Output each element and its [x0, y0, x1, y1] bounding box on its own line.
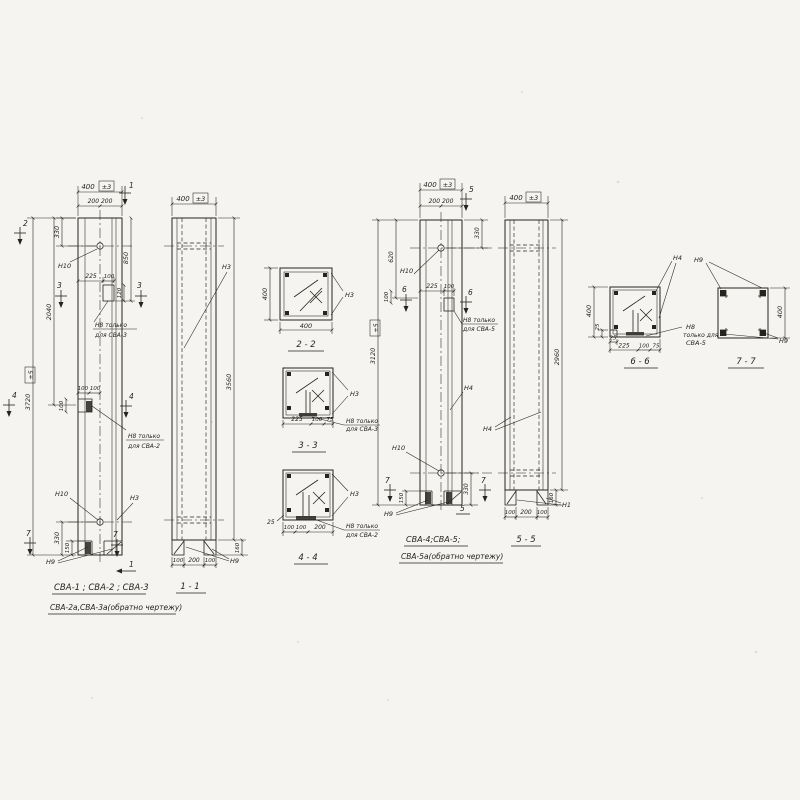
section-mark-6-left: 6 — [400, 285, 412, 312]
view-title: 7 - 7 — [736, 357, 756, 367]
tolerance-box: ±5 — [27, 370, 35, 380]
section-mark-7-right: 7 — [111, 530, 123, 557]
dim-label: 3560 — [225, 374, 233, 391]
section-4-4: Н3 25 100 100 200 Н8 только для СВА-2 4 … — [267, 470, 380, 564]
view-title: СВА-1 ; СВА-2 ; СВА-3 — [54, 583, 149, 593]
note-text: Н8 — [686, 323, 695, 331]
section-mark-label: 5 — [469, 185, 474, 194]
pile-body — [505, 220, 548, 490]
note-text: для СВА-5 — [462, 326, 495, 333]
section-mark-7-right: 7 — [479, 476, 491, 502]
view-1-1: 400 ±3 Н3 3560 100 200 100 160 Н9 1 - 1 — [164, 193, 248, 593]
note-text: Н8 только — [463, 317, 495, 324]
dim-label: 400 — [776, 306, 784, 318]
dim-label: 100 — [104, 274, 115, 280]
note-text: только для — [683, 332, 719, 339]
rebar-label: Н10 — [58, 262, 71, 270]
dim-label: 2040 — [45, 304, 53, 321]
rebar-label: Н3 — [130, 494, 139, 502]
section-mark-label: 6 — [468, 288, 473, 297]
view-title: 6 - 6 — [630, 357, 650, 367]
section-mark-2: 2 — [14, 219, 28, 245]
dim-label: 3120 — [369, 348, 377, 365]
section-3-3: Н3 225 100 75 Н8 только для СВА-3 3 - 3 — [283, 368, 380, 452]
dim-label: 75 — [653, 344, 660, 350]
dim-label: 225 — [291, 416, 303, 423]
note-text: Н8 только — [346, 523, 378, 530]
dim-label: 100 — [205, 558, 216, 564]
rebar-label: Н4 — [483, 425, 492, 433]
rebar-label: Н4 — [673, 254, 682, 262]
rebar-label: Н10 — [55, 490, 68, 498]
dim-label: 25 — [610, 336, 617, 342]
dim-label: 100 — [59, 400, 65, 411]
dim-halves-label: 200 200 — [88, 198, 113, 205]
rebar-label: Н3 — [345, 291, 354, 299]
dim-label: 400 — [585, 305, 593, 317]
section-mark-label: 1 — [129, 560, 134, 569]
dim-label: 225 — [618, 343, 630, 350]
section-2-2: Н3 400 400 2 - 2 — [261, 268, 354, 351]
section-mark-label: 3 — [137, 281, 142, 290]
dim-label: 200 — [314, 524, 326, 531]
dim-label: 225 — [85, 273, 97, 280]
dim-label: 100 — [173, 558, 184, 564]
dim-width-label: 400 — [81, 183, 95, 191]
dim-label: 200 — [188, 557, 200, 564]
dim-label: 100 100 — [78, 386, 101, 392]
dim-label: 100 — [444, 284, 455, 290]
section-mark-3-right: 3 — [135, 281, 147, 308]
rebar-label: Н4 — [464, 384, 473, 392]
view-title: 2 - 2 — [296, 340, 315, 350]
dim-label: 620 — [388, 251, 395, 263]
section-7-7: Н9 Н9 400 7 - 7 — [694, 256, 790, 368]
dim-label: 3720 — [24, 394, 32, 411]
section-mark-4-left: 4 — [3, 391, 17, 417]
dim-label: 330 — [474, 227, 481, 239]
section-mark-1-top: 1 — [119, 181, 134, 205]
dim-label: 100 — [384, 291, 390, 302]
dim-width-label: 400 — [176, 195, 190, 203]
rebar-label: Н9 — [384, 510, 393, 518]
section-mark-1-bottom: 1 — [116, 560, 136, 574]
view-title: 5 - 5 — [516, 535, 535, 545]
foot-right — [204, 540, 216, 555]
section-mark-label: 7 — [113, 530, 118, 539]
rebar-label: Н3 — [350, 390, 359, 398]
dim-label: 850 — [122, 252, 130, 264]
elevation-sva-4-5: 400 ±3 200 200 5 330 620 Н10 225 100 100… — [369, 179, 503, 563]
view-title: СВА-2а,СВА-3а(обратно чертежу) — [50, 603, 182, 612]
section-6-6: Н4 400 25 25 225 100 75 Н8 только для СВ… — [585, 254, 719, 368]
dim-label: 160 — [235, 542, 241, 553]
note-text: для СВА-3 — [345, 426, 378, 433]
foot-left — [172, 540, 184, 555]
dim-label: 25 — [595, 323, 601, 330]
dim-label: 100 — [296, 525, 307, 531]
section-mark-7-left: 7 — [384, 476, 396, 502]
rebar-label: Н9 — [46, 558, 55, 566]
note-text: Н8 только — [128, 433, 160, 440]
view-5-5: 400 ±3 2960 Н4 100 200 100 160 Н1 5 - 5 — [483, 192, 571, 546]
blueprint-canvas: 400 ±3 200 200 1 2 330 850 225 100 120 — [0, 0, 800, 800]
dim-label: 400 — [261, 288, 269, 300]
view-title: 4 - 4 — [298, 553, 317, 563]
note-text: для СВА-2 — [127, 443, 160, 450]
dim-label: 100 — [312, 417, 323, 423]
view-title: СВА-4;СВА-5; — [406, 535, 461, 544]
tolerance-box: ±5 — [372, 323, 380, 333]
dim-label: 330 — [463, 483, 470, 495]
view-title: СВА-5а(обратно чертежу) — [401, 552, 503, 561]
dim-label: 200 — [520, 509, 532, 516]
rebar-label: Н10 — [400, 267, 413, 275]
dim-label: 150 — [399, 492, 405, 503]
dim-label: 160 — [549, 492, 555, 503]
elevation-sva-1-2-3: 400 ±3 200 200 1 2 330 850 225 100 120 — [3, 181, 182, 614]
tolerance-box: ±3 — [443, 181, 453, 189]
section-mark-label: 7 — [481, 476, 486, 485]
note-text: для СВА-3 — [94, 332, 127, 339]
dim-width-label: 400 — [509, 194, 523, 202]
note-text: Н8 только — [95, 322, 127, 329]
section-mark-label: 1 — [129, 181, 134, 190]
section-mark-label: 7 — [385, 476, 390, 485]
dim-label: 100 — [537, 510, 548, 516]
section-mark-label: 2 — [23, 219, 28, 228]
dim-label: 150 — [65, 542, 71, 553]
dim-label: 225 — [426, 283, 438, 290]
dim-label: 330 — [53, 532, 61, 544]
note-text: СВА-5 — [686, 339, 706, 347]
rebar-label: Н9 — [694, 256, 703, 264]
note-text: для СВА-2 — [345, 532, 378, 539]
dim-label: 120 — [117, 287, 123, 298]
view-title: 1 - 1 — [180, 582, 199, 592]
foot-left — [505, 490, 516, 505]
section-mark-7-left: 7 — [24, 529, 36, 555]
rebar-label: Н3 — [350, 490, 359, 498]
section-mark-label: 4 — [12, 391, 17, 400]
dim-label: 2960 — [553, 349, 561, 366]
rebar-label: Н9 — [230, 557, 239, 565]
dim-halves-label: 200 200 — [429, 198, 454, 205]
rebar-label: Н10 — [392, 444, 405, 452]
dim-label: 100 — [505, 510, 516, 516]
rebar-label: Н3 — [222, 263, 231, 271]
view-title: 3 - 3 — [298, 441, 317, 451]
notch-sva5 — [444, 298, 454, 311]
tolerance-box: ±3 — [529, 194, 539, 202]
dim-label: 400 — [300, 322, 312, 330]
dim-label: 100 — [284, 525, 295, 531]
pile-body — [172, 218, 216, 540]
dim-label: 25 — [267, 519, 275, 526]
rebar-label: Н1 — [562, 501, 571, 509]
tolerance-box: ±3 — [196, 195, 206, 203]
section-mark-label: 4 — [129, 392, 134, 401]
section-mark-label: 3 — [57, 281, 62, 290]
note-text: Н8 только — [346, 418, 378, 425]
tolerance-box: ±3 — [102, 183, 112, 191]
dim-width-label: 400 — [423, 181, 437, 189]
section-mark-label: 5 — [460, 504, 465, 513]
dim-label: 100 — [639, 344, 650, 350]
section-mark-3-left: 3 — [55, 281, 67, 308]
section-mark-label: 7 — [26, 529, 31, 538]
section-mark-label: 6 — [402, 285, 407, 294]
notch-sva3 — [103, 285, 114, 301]
